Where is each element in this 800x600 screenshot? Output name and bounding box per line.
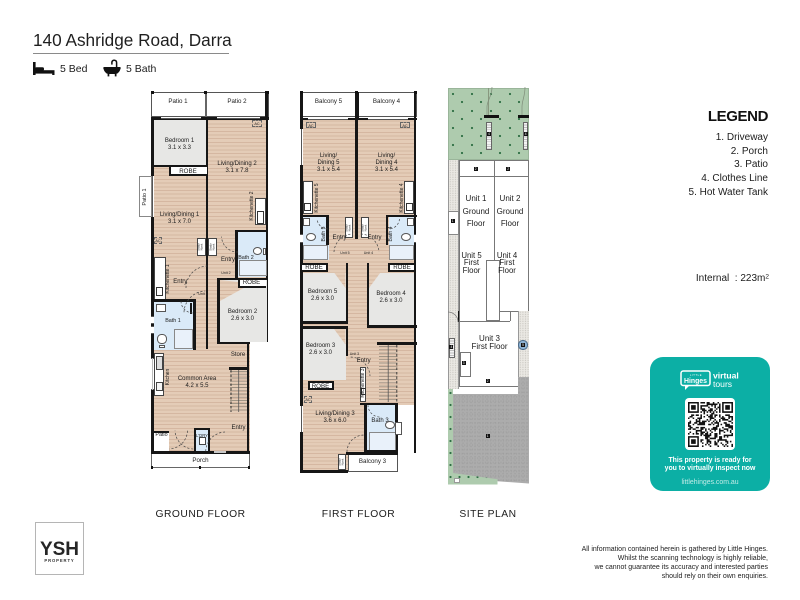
svg-text:LITTLE: LITTLE — [690, 373, 702, 377]
svg-text:Hinges: Hinges — [684, 378, 707, 385]
svg-text:tours: tours — [713, 379, 732, 389]
